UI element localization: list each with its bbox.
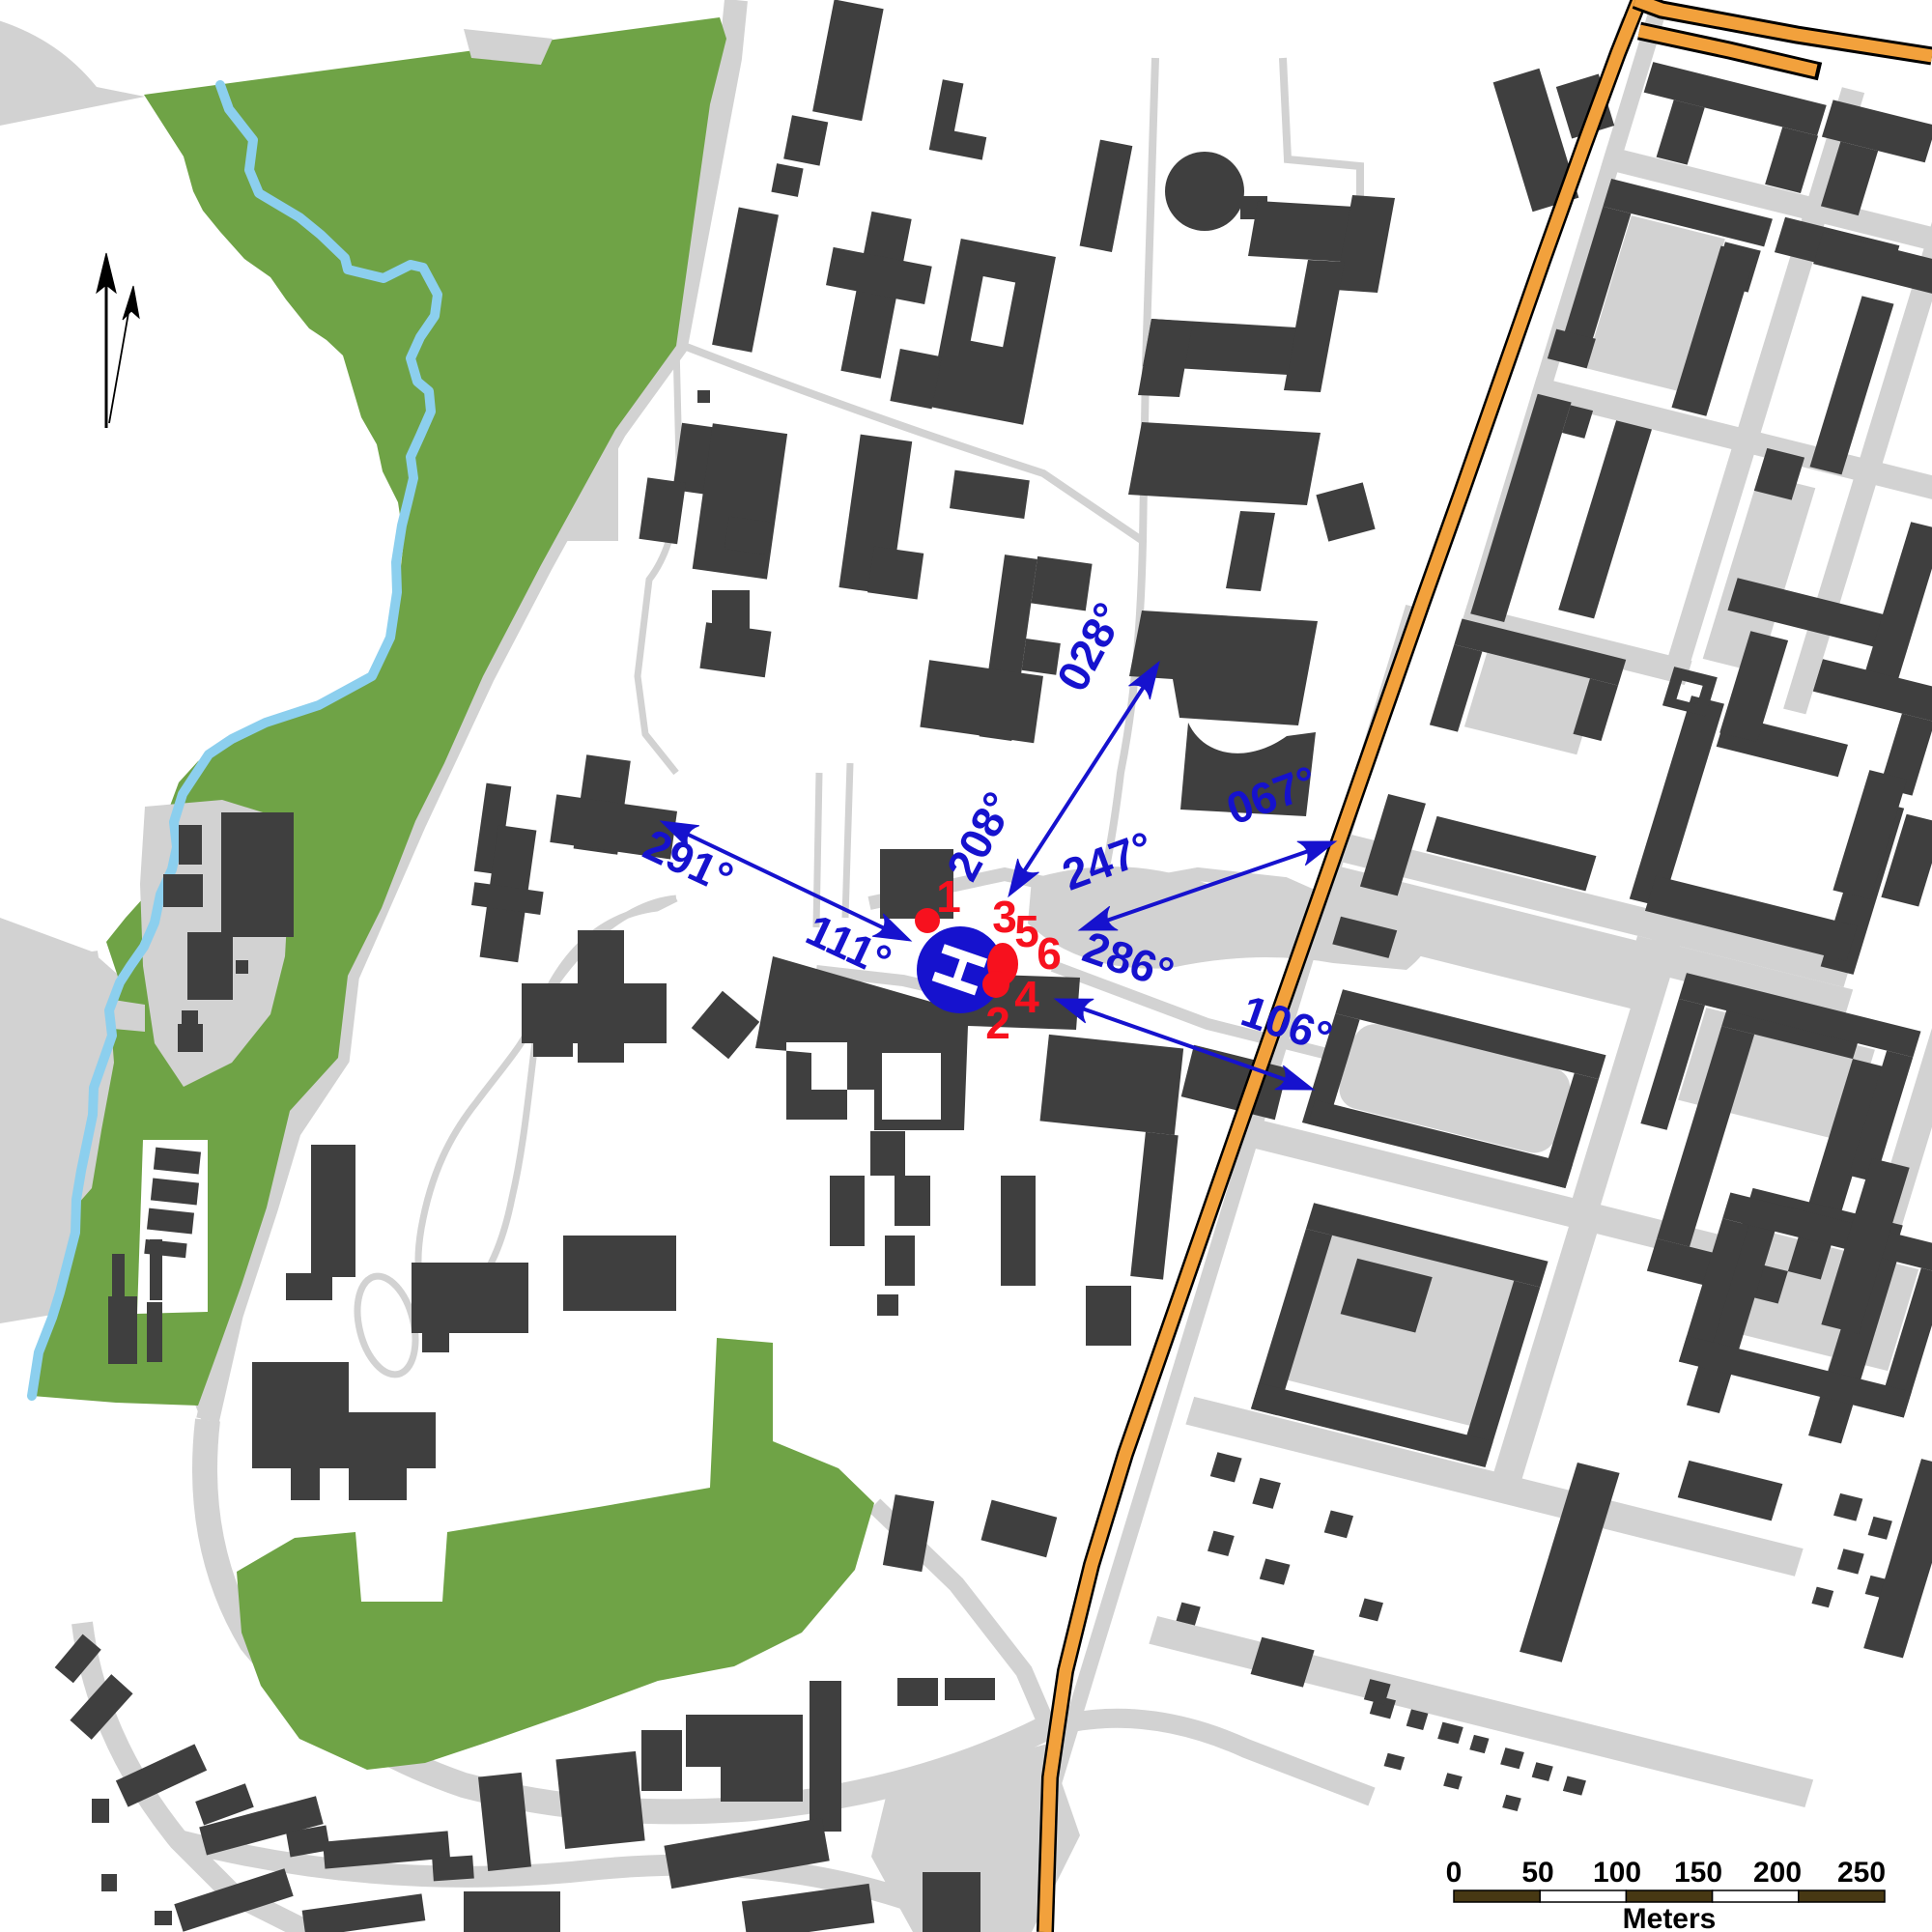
svg-text:3: 3 — [992, 892, 1017, 942]
svg-text:100: 100 — [1593, 1857, 1641, 1889]
svg-text:200: 200 — [1753, 1857, 1802, 1889]
svg-text:250: 250 — [1837, 1857, 1886, 1889]
svg-text:150: 150 — [1674, 1857, 1722, 1889]
svg-text:0: 0 — [1446, 1857, 1463, 1889]
svg-text:6: 6 — [1037, 928, 1062, 979]
svg-text:5: 5 — [1014, 906, 1039, 956]
svg-text:1: 1 — [936, 871, 961, 922]
svg-text:4: 4 — [1014, 972, 1039, 1022]
svg-text:2: 2 — [985, 998, 1010, 1048]
svg-text:Meters: Meters — [1623, 1903, 1717, 1932]
svg-text:50: 50 — [1521, 1857, 1553, 1889]
